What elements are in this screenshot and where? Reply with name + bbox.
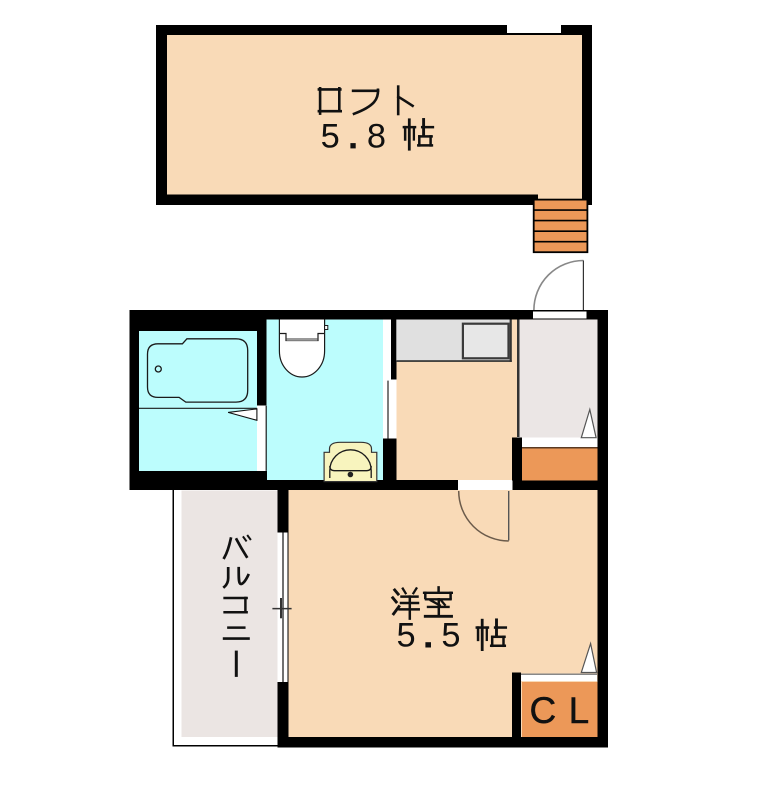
svg-text:C: C <box>530 690 557 731</box>
svg-text:5: 5 <box>397 617 416 655</box>
svg-text:5: 5 <box>441 617 460 655</box>
svg-text:8: 8 <box>367 118 386 156</box>
svg-text:L: L <box>569 690 590 731</box>
svg-text:5: 5 <box>321 118 340 156</box>
